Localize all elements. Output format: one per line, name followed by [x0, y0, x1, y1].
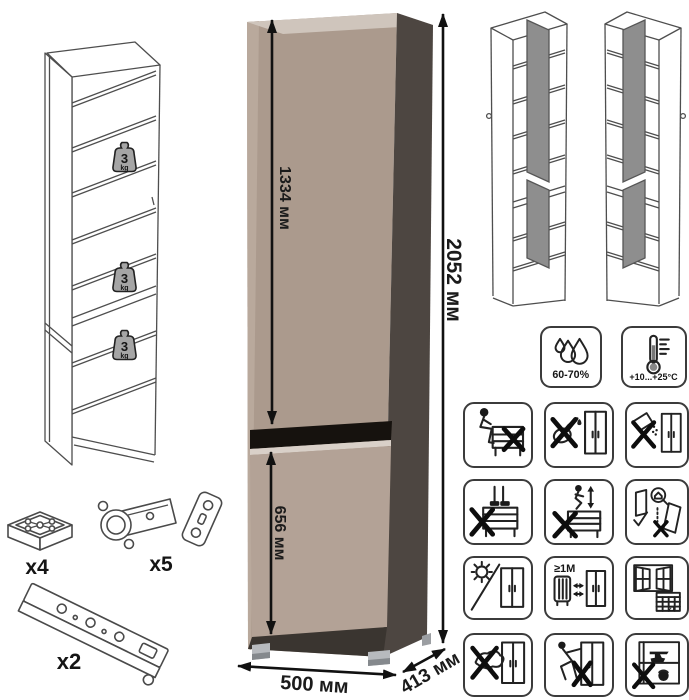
no-overload-icon [625, 633, 689, 697]
humidity-icon: 60-70% [540, 326, 602, 388]
no-jumping-icon [544, 479, 614, 545]
heat-distance-icon: ≥1M [544, 556, 614, 620]
calendar-day-label: 21 [669, 607, 676, 613]
shelf-load-badge: 3 kg [113, 331, 136, 361]
no-sitting-icon [463, 402, 533, 468]
hinge-drawing [99, 490, 224, 548]
variant-upper-door [527, 20, 549, 182]
svg-text:3: 3 [121, 339, 128, 354]
no-spilling-icon [625, 402, 689, 468]
humidity-range-label: 60-70% [553, 369, 590, 381]
variant-lower-door [623, 180, 645, 268]
door-handle-mark [152, 197, 154, 205]
sun-rays [471, 562, 491, 582]
lower-door-height-label: 656 мм [271, 506, 288, 561]
no-dragging-icon [544, 633, 614, 697]
handle-knob [681, 114, 686, 119]
depth-label: 413 мм [397, 648, 464, 699]
tilted-cabinet-glyph [664, 503, 682, 533]
min-heat-distance-label: ≥1M [554, 563, 575, 575]
svg-text:3: 3 [121, 271, 128, 286]
open-door-panel [45, 53, 72, 465]
variant-upper-door [623, 20, 645, 182]
product-diagram: 3 kg 3 kg 3 kg [0, 0, 689, 700]
foot-count-label: x4 [25, 556, 49, 579]
no-standing-icon [463, 479, 533, 545]
hinge-count-label: x5 [149, 553, 173, 576]
rail-drawing [14, 583, 169, 686]
handle-knob [487, 114, 492, 119]
svg-text:kg: kg [120, 285, 128, 292]
ventilation-icon: 21 [625, 556, 689, 620]
load-unit: kg [120, 165, 128, 172]
shelf-load-badge: 3 kg [113, 143, 136, 173]
temperature-icon: +10...+25°C [621, 326, 687, 388]
temperature-range-label: +10...+25°C [630, 372, 679, 382]
upper-door-height-label: 1334 мм [276, 166, 293, 230]
hardware-drawings: x4 x5 x2 [2, 455, 240, 700]
width-label: 500 мм [280, 672, 350, 698]
water-drops-glyph: 60-70% [544, 330, 597, 383]
cabinet-body [247, 13, 433, 666]
rail-count-label: x2 [57, 649, 81, 674]
anchor-to-wall-icon [625, 479, 689, 545]
load-value: 3 [121, 151, 128, 166]
variant-right-hinged [605, 12, 685, 306]
calendar-glyph: 21 [657, 593, 680, 613]
variant-left-hinged [487, 12, 567, 306]
main-cabinet-render: 1334 мм 656 мм 2052 мм 500 мм 413 мм [228, 0, 473, 700]
no-wet-cloth-icon [463, 633, 533, 697]
anvil-glyph [650, 652, 669, 662]
variant-lower-door [527, 180, 549, 268]
total-height-label: 2052 мм [442, 238, 465, 322]
open-cabinet-wireframe: 3 kg 3 kg 3 kg [8, 35, 220, 477]
no-direct-sunlight-icon [463, 556, 533, 620]
svg-text:kg: kg [120, 353, 128, 360]
foot-glide-drawing [8, 512, 72, 550]
thermometer-glyph: +10...+25°C [625, 330, 682, 383]
door-variant-drawings [483, 6, 689, 330]
shelves [72, 71, 156, 414]
no-watering-icon [544, 402, 614, 468]
